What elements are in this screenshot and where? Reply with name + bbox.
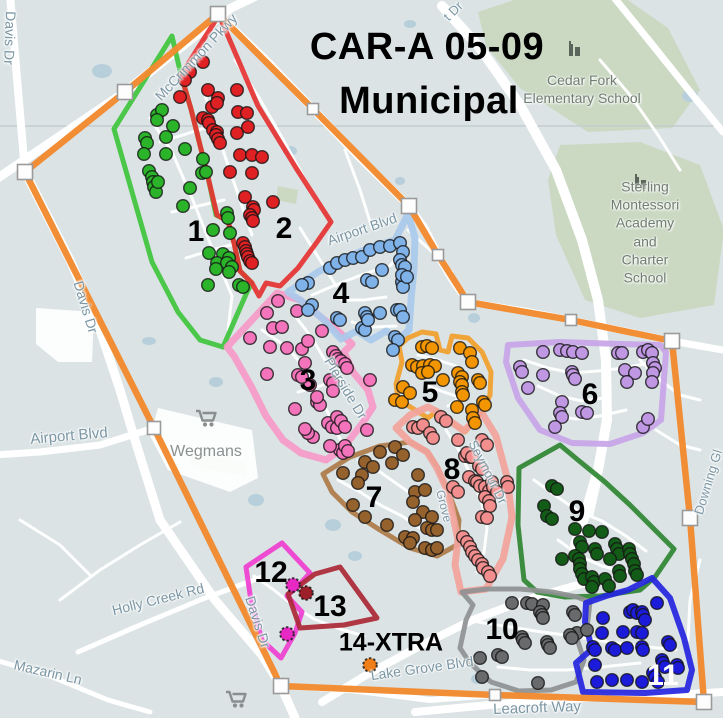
zone-3-dot[interactable] (276, 321, 289, 334)
zone-10-dot[interactable] (581, 624, 594, 637)
minor-road (20, 520, 90, 575)
zone-3-dot[interactable] (339, 421, 352, 434)
zone-1-dot[interactable] (160, 148, 173, 161)
boundary-handle[interactable] (683, 511, 698, 526)
zone-8-dot[interactable] (481, 512, 494, 525)
zone-11-dot[interactable] (659, 661, 672, 674)
zone-7-dot[interactable] (431, 542, 444, 555)
boundary-handle[interactable] (697, 695, 712, 710)
zone-2-dot[interactable] (197, 56, 210, 69)
zone-11-dot[interactable] (589, 659, 602, 672)
zone-1-dot[interactable] (237, 281, 250, 294)
boundary-handle[interactable] (18, 165, 33, 180)
zone-6-dot[interactable] (537, 369, 550, 382)
zone-3-dot[interactable] (341, 362, 354, 375)
zone-1-dot[interactable] (138, 148, 151, 161)
zone-1-dot[interactable] (200, 166, 213, 179)
zone-11-dot[interactable] (606, 674, 619, 687)
zone-11-dot[interactable] (609, 644, 622, 657)
zone-8-dot[interactable] (452, 486, 465, 499)
zone-9-dot[interactable] (556, 553, 569, 566)
boundary-handle[interactable] (461, 295, 476, 310)
zone-7-dot[interactable] (386, 457, 399, 470)
zone-3-dot[interactable] (324, 440, 337, 453)
zone-1-dot[interactable] (179, 143, 192, 156)
zone-1-dot[interactable] (152, 176, 165, 189)
zone-7-dot[interactable] (431, 524, 444, 537)
zone-2-dot[interactable] (214, 137, 227, 150)
boundary-handle[interactable] (402, 199, 417, 214)
zone-8-dot[interactable] (427, 432, 440, 445)
zone-7-dot[interactable] (347, 499, 360, 512)
zone-3-dot[interactable] (327, 385, 340, 398)
zone-10-dot[interactable] (537, 612, 550, 625)
zone-3-dot[interactable] (289, 403, 302, 416)
zone-12-dot[interactable] (286, 578, 300, 592)
map-canvas[interactable]: CAR-A 05-09 Municipal Davis DrMcCrimmon … (0, 0, 723, 718)
map-svg-layer (0, 0, 723, 718)
zone-10-dot[interactable] (519, 637, 532, 650)
zone-7-dot[interactable] (397, 449, 410, 462)
zone-9-dot[interactable] (546, 513, 559, 526)
zone-6-dot[interactable] (569, 373, 582, 386)
boundary-handle[interactable] (211, 7, 226, 22)
zone-11-dot[interactable] (637, 644, 650, 657)
zone-4-dot[interactable] (334, 314, 347, 327)
zone-7-dot[interactable] (407, 496, 420, 509)
zone-11-dot[interactable] (636, 676, 649, 689)
zone-1-dot[interactable] (202, 279, 215, 292)
zone-4-dot[interactable] (401, 271, 414, 284)
zone-6-dot[interactable] (642, 413, 655, 426)
zone-5-dot[interactable] (457, 389, 470, 402)
road (10, 0, 25, 172)
zone-2-dot[interactable] (211, 97, 224, 110)
zone-3-dot[interactable] (264, 341, 277, 354)
zone-2-dot[interactable] (234, 149, 247, 162)
zone-3-dot[interactable] (281, 342, 294, 355)
zone-3-dot[interactable] (361, 424, 374, 437)
zone-6-dot[interactable] (616, 347, 629, 360)
boundary-handle[interactable] (148, 422, 161, 435)
zone-3-dot[interactable] (272, 295, 285, 308)
minor-road (656, 430, 700, 450)
road (0, 660, 150, 712)
zone-7-dot[interactable] (381, 519, 394, 532)
zone-6-dot[interactable] (537, 346, 550, 359)
zone-9-dot[interactable] (583, 525, 596, 538)
zone-2-dot[interactable] (231, 84, 244, 97)
zone-2-dot[interactable] (246, 167, 259, 180)
zone-1-dot[interactable] (210, 263, 223, 276)
zone-6-dot[interactable] (646, 376, 659, 389)
pond (325, 519, 341, 531)
zone-3-dot[interactable] (296, 371, 309, 384)
zone-1-dot[interactable] (207, 224, 220, 237)
zone-1-dot[interactable] (222, 212, 235, 225)
zone-3-dot[interactable] (244, 332, 257, 345)
zone-10-dot[interactable] (506, 597, 519, 610)
zone-8-dot[interactable] (452, 434, 465, 447)
zone-5-dot[interactable] (479, 399, 492, 412)
zone-4-dot[interactable] (366, 276, 379, 289)
boundary-handle[interactable] (118, 85, 133, 100)
zone-4-dot[interactable] (296, 279, 309, 292)
zone-3-dot[interactable] (261, 307, 274, 320)
zone-2-dot[interactable] (267, 196, 280, 209)
zone-5-dot[interactable] (466, 356, 479, 369)
zone-2-dot[interactable] (247, 215, 260, 228)
minor-road (498, 663, 640, 670)
zone-5-dot[interactable] (474, 377, 487, 390)
zone-14-dot[interactable] (363, 658, 377, 672)
boundary-handle[interactable] (433, 250, 444, 261)
minor-road (342, 297, 386, 300)
pond (209, 377, 223, 387)
zone-2-dot[interactable] (224, 166, 237, 179)
zone-9-dot[interactable] (591, 548, 604, 561)
zone-8-dot[interactable] (502, 481, 515, 494)
zone-1-dot[interactable] (151, 114, 164, 127)
zone-9-dot[interactable] (614, 570, 627, 583)
parking-plaza (36, 308, 94, 362)
zone-3-dot[interactable] (342, 445, 355, 458)
zone-6-dot[interactable] (581, 407, 594, 420)
zone-2-dot[interactable] (246, 257, 259, 270)
zone-3-dot[interactable] (299, 357, 312, 370)
zone-1-dot[interactable] (223, 266, 236, 279)
zone-1-dot[interactable] (177, 200, 190, 213)
zone-4-dot[interactable] (397, 311, 410, 324)
zone-2-dot[interactable] (256, 151, 269, 164)
zone-11-dot[interactable] (596, 627, 609, 640)
zone-1-dot[interactable] (197, 153, 210, 166)
zone-1-dot[interactable] (160, 131, 173, 144)
pond (395, 177, 405, 185)
zone-7-dot[interactable] (404, 537, 417, 550)
zone-11-dot[interactable] (651, 597, 664, 610)
minor-road (428, 386, 456, 396)
zone-1-dot[interactable] (167, 120, 180, 133)
zone-8-dot[interactable] (476, 463, 489, 476)
zone-10-dot[interactable] (532, 677, 545, 690)
zone-3-dot[interactable] (316, 325, 329, 338)
pond (142, 337, 156, 345)
zone-13-dot[interactable] (299, 586, 313, 600)
zone-9-dot[interactable] (603, 580, 616, 593)
zone-3-dot[interactable] (364, 374, 377, 387)
zone-6-dot[interactable] (576, 347, 589, 360)
zone-11-dot[interactable] (639, 614, 652, 627)
zone-11-dot[interactable] (621, 674, 634, 687)
boundary-handle[interactable] (274, 679, 289, 694)
zone-11-dot[interactable] (591, 676, 604, 689)
zone-12-dot[interactable] (280, 627, 294, 641)
zone-10-dot[interactable] (569, 609, 582, 622)
zone-8-dot[interactable] (481, 439, 494, 452)
zone-4-dot[interactable] (376, 264, 389, 277)
boundary-handle[interactable] (308, 104, 319, 115)
zone-2-dot[interactable] (241, 107, 254, 120)
pond (404, 20, 416, 28)
zone-9-dot[interactable] (569, 523, 582, 536)
zone-5-dot[interactable] (426, 342, 439, 355)
zone-7-dot[interactable] (409, 514, 422, 527)
zone-7-dot[interactable] (337, 467, 350, 480)
zone-10-dot[interactable] (474, 652, 487, 665)
zone-2-dot[interactable] (174, 91, 187, 104)
pond (248, 494, 264, 506)
zone-1-dot[interactable] (224, 227, 237, 240)
zone-6-dot[interactable] (522, 382, 535, 395)
zone-5-dot[interactable] (437, 374, 450, 387)
zone-7-dot[interactable] (359, 511, 372, 524)
zone-1-dot[interactable] (184, 182, 197, 195)
zone-11-dot[interactable] (636, 627, 649, 640)
zone-11-dot[interactable] (597, 612, 610, 625)
zone-4-dot[interactable] (374, 307, 387, 320)
zone-7-dot[interactable] (374, 446, 387, 459)
zone-10-dot[interactable] (544, 642, 557, 655)
boundary-handle[interactable] (665, 334, 680, 349)
zone-3-dot[interactable] (311, 391, 324, 404)
zone-6-dot[interactable] (516, 366, 529, 379)
zone-5-dot[interactable] (451, 401, 464, 414)
zone-8-dot[interactable] (484, 500, 497, 513)
zone-11-dot[interactable] (652, 676, 665, 689)
zone-9-dot[interactable] (551, 483, 564, 496)
zone-11-dot[interactable] (664, 639, 677, 652)
zone-6-dot[interactable] (549, 421, 562, 434)
boundary-handle[interactable] (566, 315, 577, 326)
zone-9-dot[interactable] (631, 569, 644, 582)
zone-3-dot[interactable] (299, 423, 312, 436)
zone-8-dot[interactable] (484, 570, 497, 583)
zone-5-dot[interactable] (469, 417, 482, 430)
zone-4-dot[interactable] (362, 314, 375, 327)
zone-9-dot[interactable] (596, 526, 609, 539)
zone-10-dot[interactable] (566, 632, 579, 645)
zone-2-dot[interactable] (179, 74, 192, 87)
shopping-cart-icon (226, 692, 246, 708)
zone-6-dot[interactable] (621, 376, 634, 389)
zone-7-dot[interactable] (412, 469, 425, 482)
zone-5-dot[interactable] (422, 366, 435, 379)
zone-9-dot[interactable] (586, 581, 599, 594)
zone-2-dot[interactable] (242, 121, 255, 134)
zone-10-dot[interactable] (496, 651, 509, 664)
pond (92, 64, 112, 78)
zone-4-dot[interactable] (302, 304, 315, 317)
boundary-handle[interactable] (490, 690, 501, 701)
zone-9-dot[interactable] (604, 553, 617, 566)
zone-11-dot[interactable] (621, 642, 634, 655)
zone-7-dot[interactable] (419, 484, 432, 497)
zone-11-dot[interactable] (672, 662, 685, 675)
zone-4-dot[interactable] (387, 344, 400, 357)
zone-7-dot[interactable] (352, 477, 365, 490)
zone-8-dot[interactable] (440, 415, 453, 428)
zone-5-dot[interactable] (404, 387, 417, 400)
pond (348, 551, 362, 561)
zone-11-dot[interactable] (589, 644, 602, 657)
zone-7-dot[interactable] (367, 461, 380, 474)
zone-3-dot[interactable] (302, 335, 315, 348)
minor-road (538, 386, 604, 401)
pond (468, 313, 480, 323)
zone-3-dot[interactable] (261, 368, 274, 381)
zone-10-dot[interactable] (476, 671, 489, 684)
zone-11-dot[interactable] (617, 626, 630, 639)
